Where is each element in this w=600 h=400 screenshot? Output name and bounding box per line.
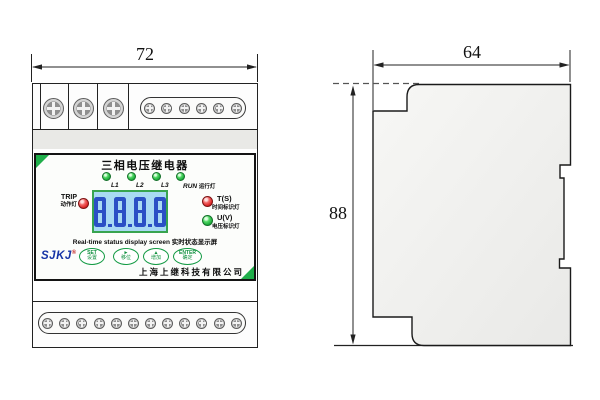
decimal-point	[108, 224, 112, 228]
terminal-screw-icon	[179, 318, 190, 329]
terminal-divider	[128, 84, 129, 129]
led-l1-icon	[102, 172, 111, 181]
increase-button[interactable]: ▲ 增加	[143, 248, 169, 265]
trip-led-icon	[78, 198, 89, 209]
terminal-screw-icon	[43, 98, 64, 119]
seven-segment-digit	[114, 197, 127, 227]
brand-logo: SJKJ®	[41, 250, 77, 262]
voltage-indicator-sub: 电压标识灯	[212, 222, 240, 230]
terminal-screw-icon	[111, 318, 122, 329]
trip-indicator-label: TRIP 动作灯	[49, 194, 77, 208]
led-label-l3: L3	[161, 182, 169, 189]
side-profile-outline	[373, 85, 571, 346]
seven-segment-digit	[154, 197, 167, 227]
front-panel: 三相电压继电器 L1 L2 L3 RUN 运行灯 TRIP 动作灯 T(S) 时…	[34, 153, 256, 281]
terminal-screw-icon	[94, 318, 105, 329]
shift-button[interactable]: ► 移位	[113, 248, 139, 265]
terminal-screw-icon	[231, 103, 242, 114]
top-terminal-group	[140, 97, 246, 119]
terminal-screw-icon	[161, 103, 172, 114]
top-terminal-block	[33, 84, 257, 130]
time-indicator-sub: 时间标识灯	[212, 203, 240, 211]
led-l3-icon	[152, 172, 161, 181]
led-label-run-sub: 运行灯	[199, 184, 216, 190]
lcd-display	[92, 190, 168, 233]
dimension-drawing: 72 64 88 三相电压继电器 L1 L2 L3 RUN 运行灯	[0, 0, 600, 400]
terminal-screw-icon	[128, 318, 139, 329]
terminal-screw-icon	[144, 103, 155, 114]
seven-segment-digit	[94, 197, 107, 227]
decimal-point	[128, 224, 132, 228]
display-caption: Real-time status display screen 实时状态显示屏	[36, 236, 254, 246]
bottom-terminal-block	[33, 301, 257, 347]
terminal-divider	[40, 84, 41, 129]
registered-mark: ®	[72, 250, 77, 256]
terminal-divider	[68, 84, 69, 129]
terminal-screw-icon	[231, 318, 242, 329]
terminal-screw-icon	[42, 318, 53, 329]
led-label-l2: L2	[136, 182, 144, 189]
terminal-screw-icon	[179, 103, 190, 114]
terminal-screw-icon	[76, 318, 87, 329]
relay-front-view: 三相电压继电器 L1 L2 L3 RUN 运行灯 TRIP 动作灯 T(S) 时…	[32, 83, 258, 348]
front-width-value: 72	[125, 45, 165, 63]
terminal-screw-icon	[213, 103, 224, 114]
side-width-value: 64	[452, 43, 492, 61]
terminal-screw-icon	[145, 318, 156, 329]
led-l2-icon	[127, 172, 136, 181]
terminal-screw-icon	[196, 103, 207, 114]
set-button[interactable]: SET 设置	[79, 248, 105, 265]
terminal-screw-icon	[196, 318, 207, 329]
decimal-point	[148, 224, 152, 228]
led-label-l1: L1	[111, 182, 119, 189]
company-name: 上海上继科技有限公司	[139, 266, 244, 278]
device-title: 三相电压继电器	[36, 157, 254, 173]
terminal-screw-icon	[73, 98, 94, 119]
terminal-screw-icon	[59, 318, 70, 329]
terminal-screw-icon	[103, 98, 124, 119]
terminal-screw-icon	[214, 318, 225, 329]
housing-band	[33, 130, 257, 149]
terminal-divider	[97, 84, 98, 129]
led-label-run: RUN 运行灯	[183, 182, 215, 190]
bottom-terminal-group	[38, 312, 246, 334]
led-run-icon	[176, 172, 185, 181]
time-indicator-label: T(S)	[217, 194, 232, 203]
enter-button[interactable]: ENTER 确定	[173, 248, 202, 265]
side-height-value: 88	[318, 204, 358, 222]
voltage-indicator-label: U(V)	[217, 213, 232, 222]
terminal-screw-icon	[162, 318, 173, 329]
seven-segment-digit	[134, 197, 147, 227]
